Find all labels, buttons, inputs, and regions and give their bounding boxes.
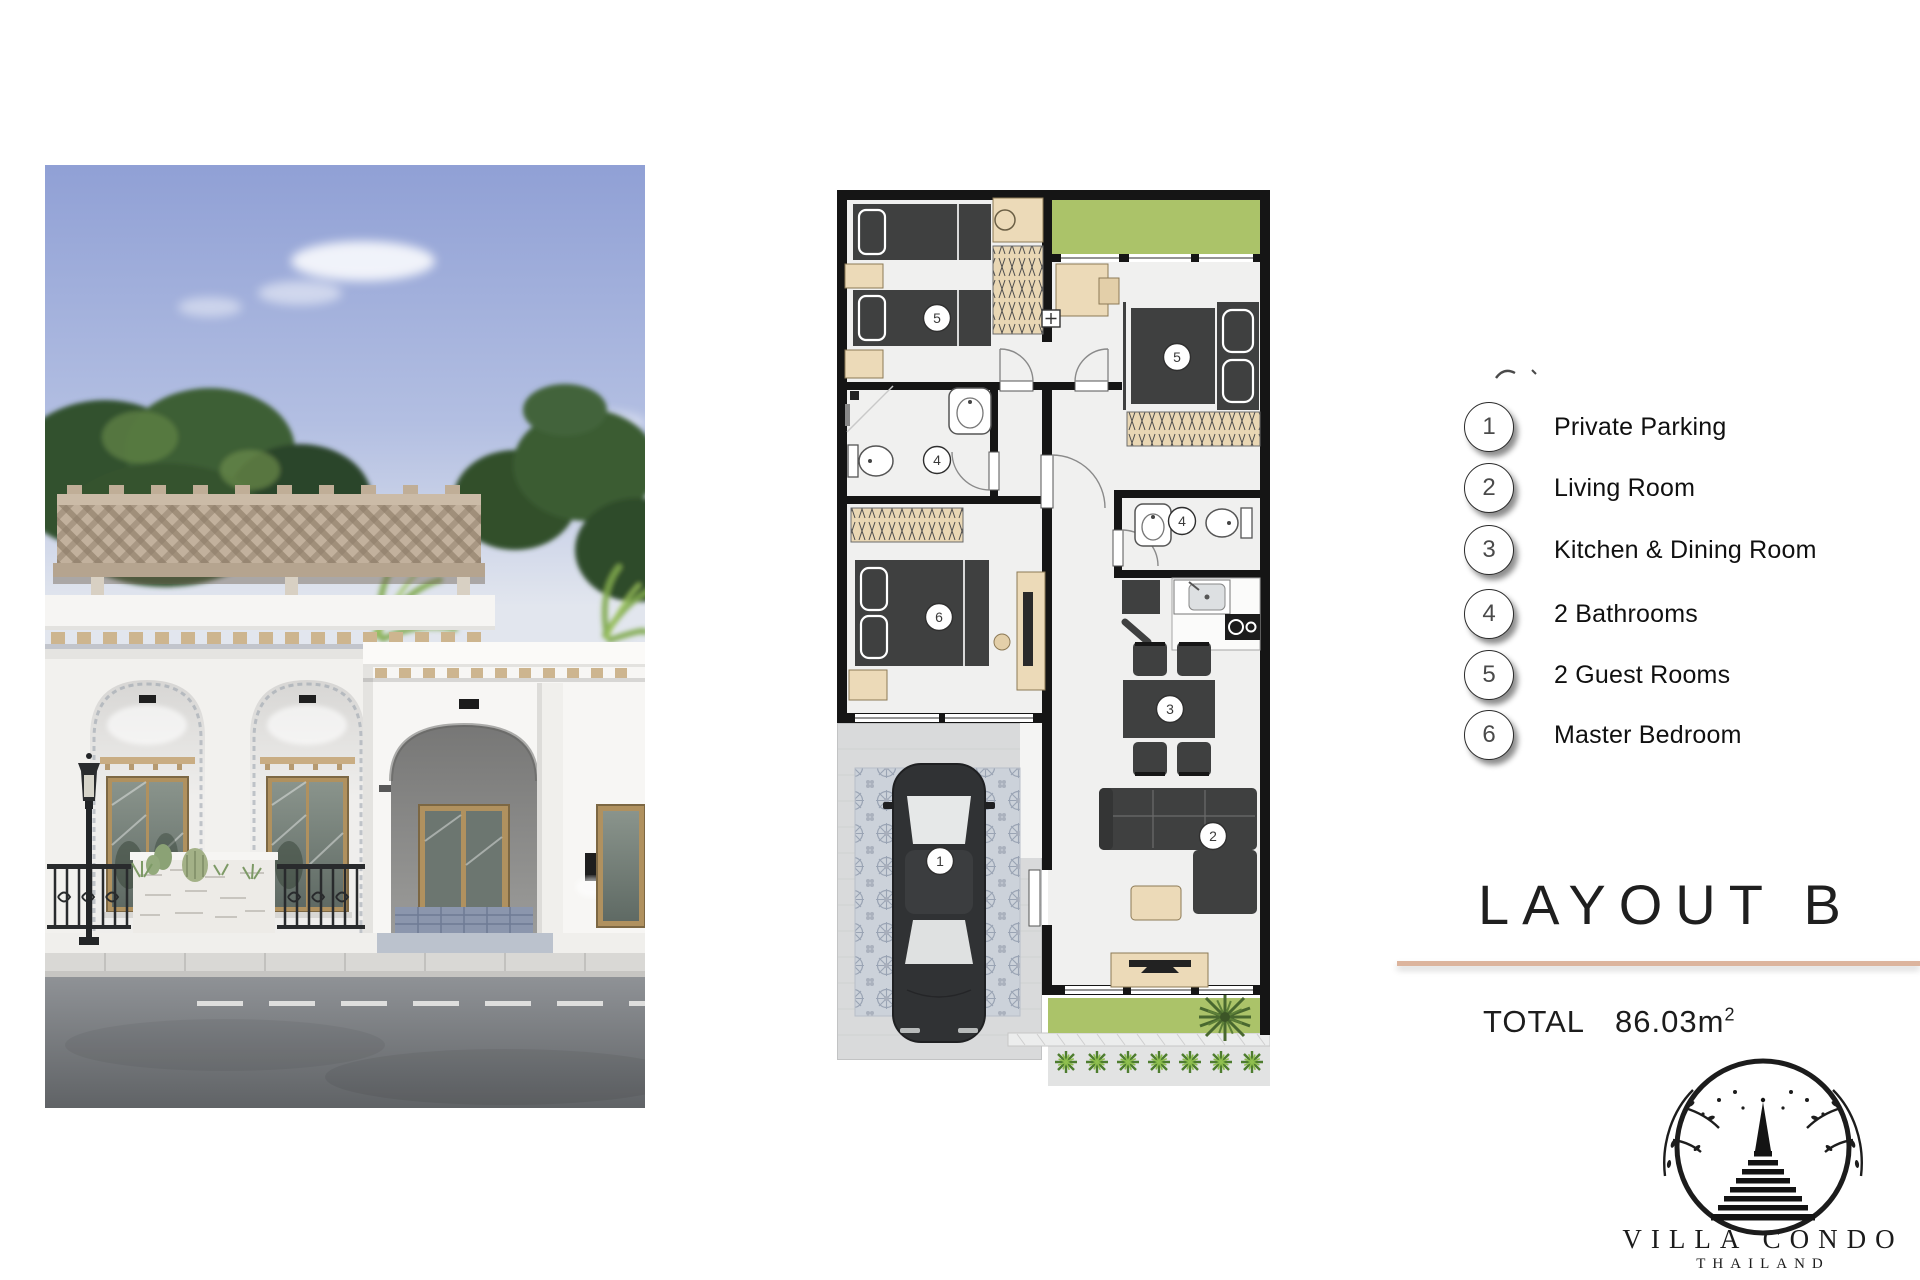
legend-number: 2 [1482,474,1495,502]
stone-planter-wall [130,844,278,933]
legend-number: 4 [1482,600,1495,628]
total-label: TOTAL [1483,1004,1585,1039]
brand-logo-icon [1633,1056,1894,1236]
legend-item-kitchen-dining: 3 Kitchen & Dining Room [1464,526,1817,574]
street [45,953,645,1108]
legend-item-living-room: 2 Living Room [1464,464,1695,512]
plan-marker-number: 4 [933,452,941,468]
plan-marker-number: 5 [933,310,941,326]
plan-marker-number: 2 [1209,828,1217,844]
legend-label: Private Parking [1554,413,1727,442]
legend-number-badge: 2 [1464,463,1514,513]
palm-tree [1199,993,1251,1041]
walkway [1008,1033,1270,1046]
wall-base [45,933,645,953]
plan-marker-number: 6 [935,609,943,625]
logo-pagoda [1711,1098,1815,1221]
legend-number-badge: 4 [1464,589,1514,639]
legend-label: Master Bedroom [1554,721,1742,750]
kitchen [1122,578,1260,650]
divider [1397,961,1920,966]
legend-number: 6 [1482,721,1495,749]
legend-number-badge: 6 [1464,710,1514,760]
plan-marker-number: 4 [1178,513,1186,529]
legend-number: 5 [1482,661,1495,689]
page-title: LAYOUT B [1478,872,1854,937]
pergola [53,485,485,601]
legend-item-bathrooms: 4 2 Bathrooms [1464,590,1698,638]
plan-marker-number: 5 [1173,349,1181,365]
legend-label: Kitchen & Dining Room [1554,536,1817,565]
floor-plan: 5 5 4 4 6 3 2 1 [837,190,1270,1090]
legend-label: Living Room [1554,474,1695,503]
villa-photo [45,165,645,1108]
balcony-green [1052,200,1260,258]
car [883,764,995,1042]
legend-item-master-bedroom: 6 Master Bedroom [1464,711,1742,759]
legend-item-guest-rooms: 5 2 Guest Rooms [1464,651,1730,699]
legend-number: 1 [1482,413,1495,441]
plan-marker-number: 1 [936,853,944,869]
brand-name: VILLA CONDO [1603,1224,1920,1255]
total-superscript: 2 [1724,1005,1735,1025]
total-area: TOTAL86.03m2 [1483,1004,1735,1040]
legend-number-badge: 3 [1464,525,1514,575]
legend-item-private-parking: 1 Private Parking [1464,403,1727,451]
page: 5 5 4 4 6 3 2 1 1 Private Parking 2 Livi… [0,0,1920,1280]
stray-mark [1492,362,1542,390]
brand-country: THAILAND [1603,1256,1920,1273]
total-value: 86.03m [1615,1004,1724,1039]
legend-number-badge: 1 [1464,402,1514,452]
legend-label: 2 Bathrooms [1554,600,1698,629]
plan-marker-number: 3 [1166,701,1174,717]
legend-number: 3 [1482,536,1495,564]
legend-number-badge: 5 [1464,650,1514,700]
legend-label: 2 Guest Rooms [1554,661,1730,690]
entry-court-tiles [377,933,553,953]
